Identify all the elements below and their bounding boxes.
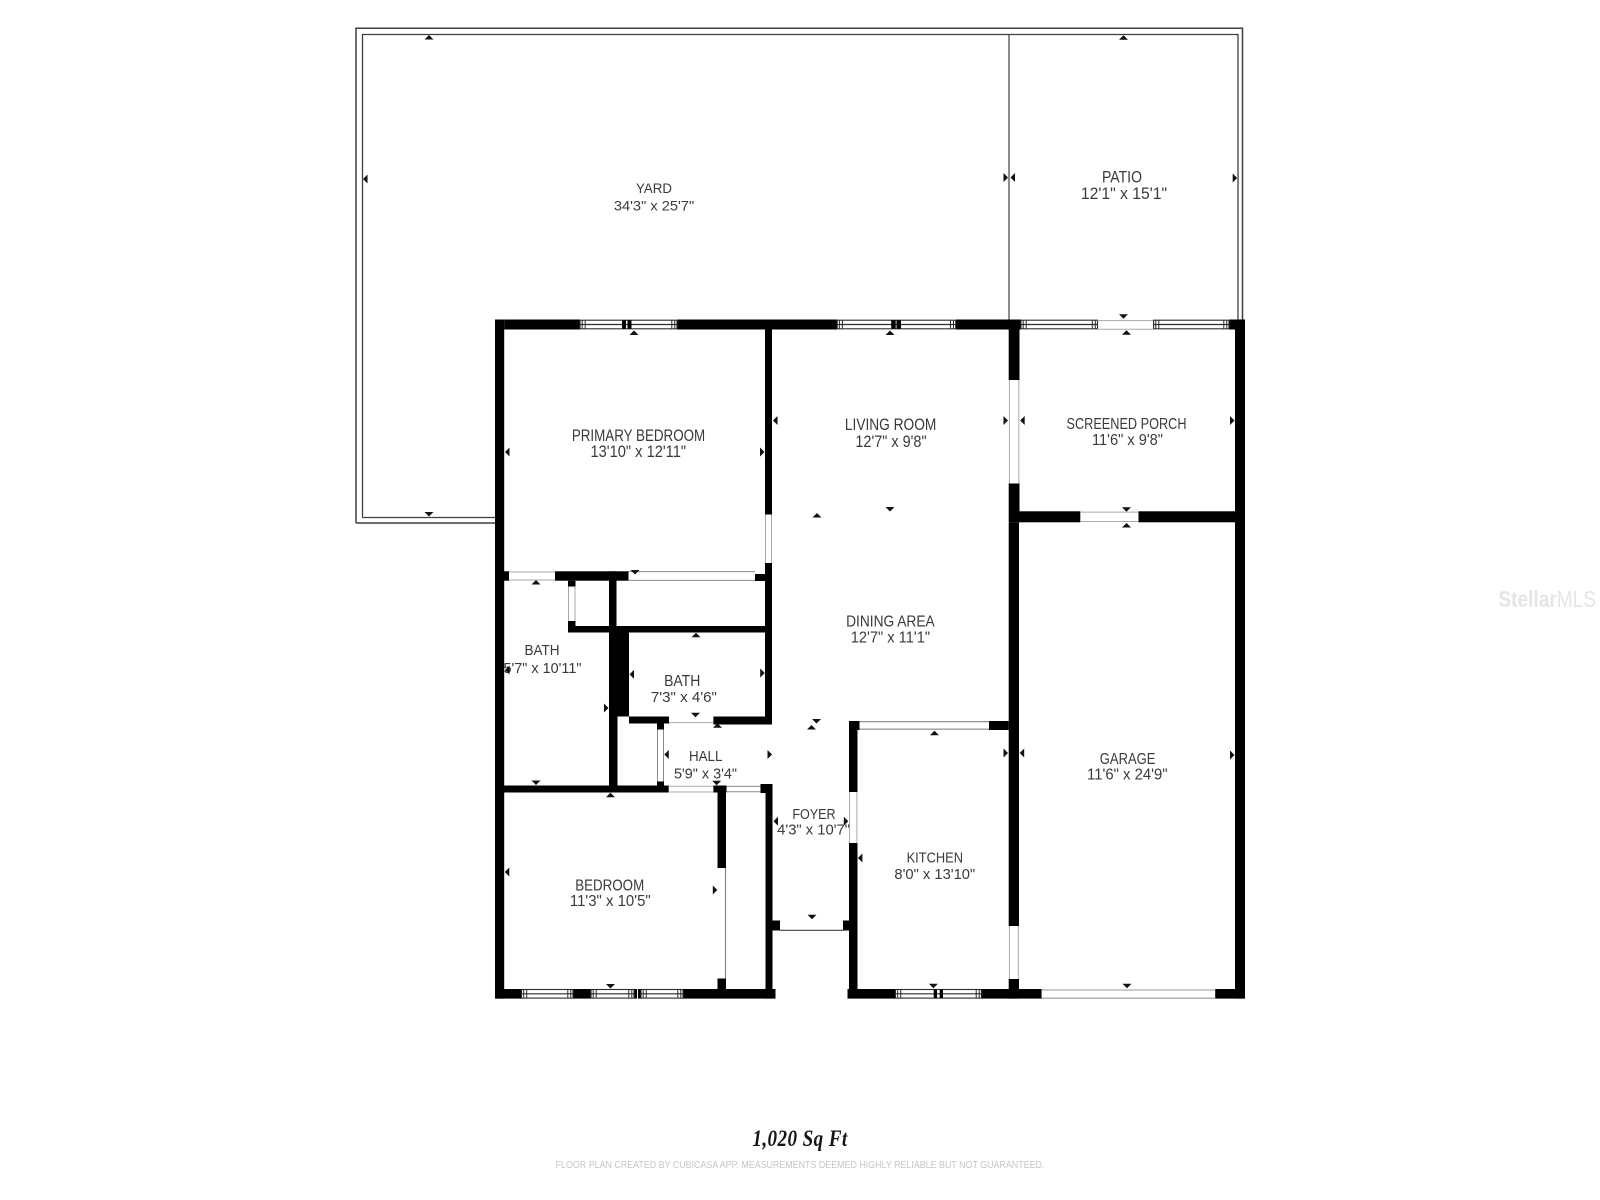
svg-text:SCREENED PORCH: SCREENED PORCH	[1067, 416, 1187, 433]
svg-text:8'0" x 13'10": 8'0" x 13'10"	[894, 866, 975, 883]
svg-text:7'3" x 4'6": 7'3" x 4'6"	[651, 689, 717, 706]
svg-text:FOYER: FOYER	[792, 806, 835, 823]
svg-text:FLOOR PLAN CREATED BY CUBICASA: FLOOR PLAN CREATED BY CUBICASA APP. MEAS…	[556, 1160, 1045, 1172]
svg-text:PRIMARY BEDROOM: PRIMARY BEDROOM	[572, 426, 705, 445]
svg-text:4'3" x 10'7": 4'3" x 10'7"	[777, 821, 850, 838]
svg-text:12'7" x 11'1": 12'7" x 11'1"	[851, 630, 930, 647]
svg-text:GARAGE: GARAGE	[1100, 751, 1156, 768]
svg-text:34'3" x 25'7": 34'3" x 25'7"	[614, 198, 694, 214]
svg-text:BATH: BATH	[524, 642, 559, 659]
svg-text:13'10" x 12'11": 13'10" x 12'11"	[591, 443, 687, 461]
svg-text:11'6" x 9'8": 11'6" x 9'8"	[1092, 432, 1163, 449]
svg-text:12'7" x 9'8": 12'7" x 9'8"	[855, 433, 926, 451]
svg-text:12'1" x 15'1": 12'1" x 15'1"	[1081, 185, 1167, 203]
svg-text:HALL: HALL	[689, 748, 723, 765]
svg-text:11'6" x 24'9": 11'6" x 24'9"	[1087, 767, 1168, 784]
svg-text:1,020 Sq Ft: 1,020 Sq Ft	[752, 1125, 848, 1151]
svg-text:11'3" x 10'5": 11'3" x 10'5"	[570, 893, 651, 910]
svg-text:KITCHEN: KITCHEN	[907, 851, 963, 867]
svg-text:5'9" x 3'4": 5'9" x 3'4"	[674, 766, 737, 783]
svg-text:BATH: BATH	[664, 673, 700, 690]
svg-text:PATIO: PATIO	[1102, 168, 1142, 187]
svg-text:BEDROOM: BEDROOM	[575, 877, 644, 894]
svg-text:StellarMLS: StellarMLS	[1498, 587, 1596, 612]
svg-text:5'7" x 10'11": 5'7" x 10'11"	[504, 660, 582, 677]
svg-text:LIVING ROOM: LIVING ROOM	[845, 415, 936, 434]
svg-text:YARD: YARD	[636, 181, 672, 197]
svg-text:DINING AREA: DINING AREA	[846, 613, 935, 630]
